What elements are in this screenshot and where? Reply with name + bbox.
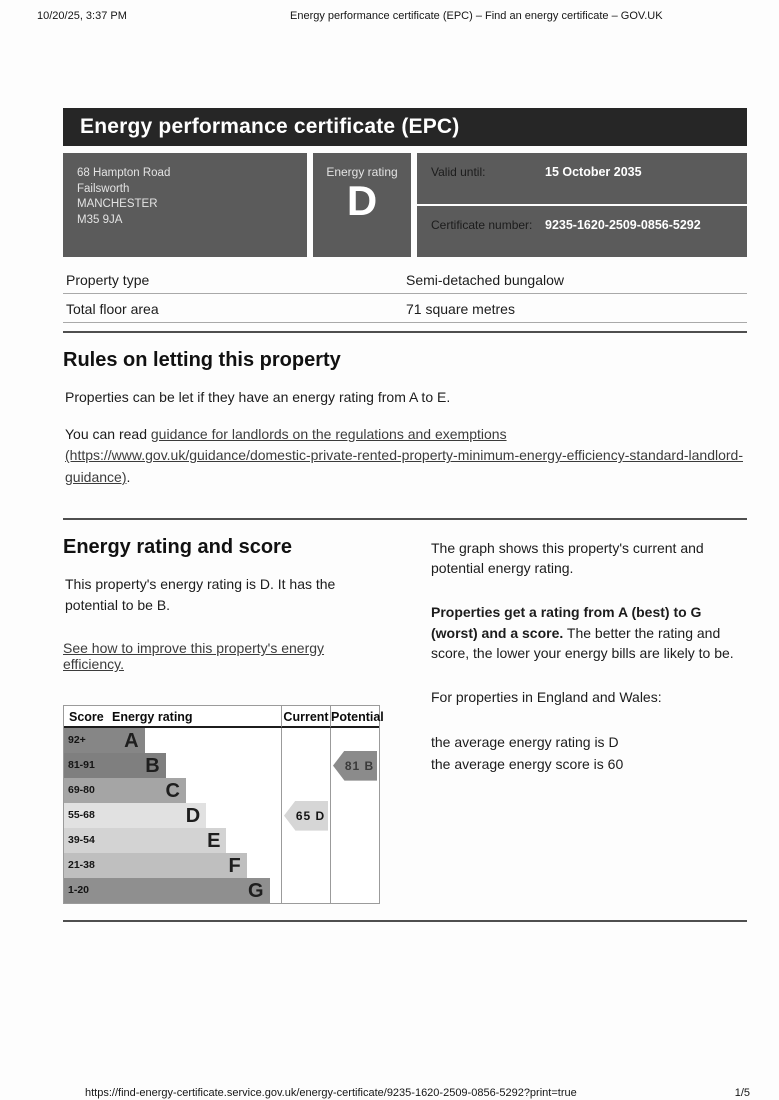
current-rating-arrow: 65 D — [284, 801, 328, 831]
band-bar-cell-g: G — [105, 878, 281, 903]
energy-rating-summary: This property's energy rating is D. It h… — [63, 574, 381, 617]
chart-col-header-rating: Energy rating — [105, 706, 281, 728]
certificate-summary-card: 68 Hampton Road Failsworth MANCHESTER M3… — [63, 153, 747, 257]
band-bar-a: A — [105, 728, 145, 753]
potential-cell-g — [330, 878, 379, 903]
potential-cell-c — [330, 778, 379, 803]
valid-until-row: Valid until: 15 October 2035 — [417, 153, 747, 204]
address-line-3: MANCHESTER — [77, 197, 293, 213]
property-address: 68 Hampton Road Failsworth MANCHESTER M3… — [63, 153, 307, 257]
chart-col-header-potential: Potential — [330, 706, 379, 728]
band-letter-g: G — [248, 881, 264, 901]
potential-rating-arrow: 81 B — [333, 751, 377, 781]
energy-rating-heading: Energy rating and score — [63, 536, 381, 559]
letting-rules-heading: Rules on letting this property — [63, 349, 747, 372]
potential-cell-f — [330, 853, 379, 878]
letting-rules-guidance-paragraph: You can read guidance for landlords on t… — [63, 424, 747, 489]
current-cell-d: 65 D — [281, 803, 330, 828]
england-wales-intro: For properties in England and Wales: — [431, 687, 747, 707]
current-cell-b — [281, 753, 330, 778]
validity-box: Valid until: 15 October 2035 Certificate… — [417, 153, 747, 257]
landlord-guidance-link[interactable]: guidance for landlords on the regulation… — [65, 426, 743, 485]
guidance-text-suffix: . — [127, 469, 131, 485]
band-score-a: 92+ — [64, 728, 105, 753]
band-bar-cell-d: D — [105, 803, 281, 828]
property-type-value: Semi-detached bungalow — [406, 272, 564, 288]
potential-cell-b: 81 B — [330, 753, 379, 778]
energy-rating-section: Energy rating and score This property's … — [63, 520, 747, 904]
band-score-c: 69-80 — [64, 778, 105, 803]
band-bar-f: F — [105, 853, 247, 878]
band-bar-cell-f: F — [105, 853, 281, 878]
band-letter-f: F — [228, 856, 240, 876]
property-type-label: Property type — [66, 272, 406, 288]
band-bar-d: D — [105, 803, 206, 828]
address-line-1: 68 Hampton Road — [77, 166, 293, 182]
energy-rating-left-column: Energy rating and score This property's … — [63, 520, 381, 904]
band-letter-d: D — [186, 806, 200, 826]
valid-until-value: 15 October 2035 — [545, 165, 642, 204]
band-bar-cell-b: B — [105, 753, 281, 778]
address-line-4: M35 9JA — [77, 213, 293, 229]
band-bar-e: E — [105, 828, 226, 853]
band-score-f: 21-38 — [64, 853, 105, 878]
current-cell-g — [281, 878, 330, 903]
property-facts-table: Property type Semi-detached bungalow Tot… — [63, 265, 747, 323]
improve-efficiency-link[interactable]: See how to improve this property's energ… — [63, 640, 381, 672]
band-bar-b: B — [105, 753, 166, 778]
epc-rating-chart: Score Energy rating Current Potential 92… — [63, 705, 380, 904]
potential-cell-e — [330, 828, 379, 853]
current-cell-f — [281, 853, 330, 878]
address-line-2: Failsworth — [77, 182, 293, 198]
band-letter-b: B — [145, 756, 159, 776]
letting-rules-paragraph: Properties can be let if they have an en… — [63, 387, 747, 409]
floor-area-label: Total floor area — [66, 301, 406, 317]
band-bar-cell-c: C — [105, 778, 281, 803]
certificate-number-value: 9235-1620-2509-0856-5292 — [545, 218, 701, 257]
band-bar-c: C — [105, 778, 186, 803]
floor-area-value: 71 square metres — [406, 301, 515, 317]
chart-col-header-current: Current — [281, 706, 330, 728]
valid-until-label: Valid until: — [431, 165, 545, 204]
guidance-text-prefix: You can read — [65, 426, 151, 442]
band-bar-cell-e: E — [105, 828, 281, 853]
current-cell-a — [281, 728, 330, 753]
energy-rating-box: Energy rating D — [313, 153, 411, 257]
rating-explanation: Properties get a rating from A (best) to… — [431, 602, 747, 663]
graph-description: The graph shows this property's current … — [431, 538, 747, 579]
band-letter-a: A — [124, 731, 138, 751]
band-letter-c: C — [166, 781, 180, 801]
epc-chart-grid: Score Energy rating Current Potential 92… — [64, 706, 379, 903]
current-cell-e — [281, 828, 330, 853]
average-rating-line: the average energy rating is D — [431, 732, 747, 752]
certificate-content: Energy performance certificate (EPC) 68 … — [63, 108, 747, 922]
epc-banner-title: Energy performance certificate (EPC) — [80, 115, 460, 139]
band-bar-cell-a: A — [105, 728, 281, 753]
print-datetime: 10/20/25, 3:37 PM — [37, 10, 127, 22]
section-divider — [63, 331, 747, 333]
printed-page: 10/20/25, 3:37 PM Energy performance cer… — [0, 0, 779, 1100]
section-divider — [63, 920, 747, 922]
table-row: Total floor area 71 square metres — [63, 294, 747, 323]
potential-cell-d — [330, 803, 379, 828]
print-url: https://find-energy-certificate.service.… — [85, 1087, 577, 1099]
print-document-title: Energy performance certificate (EPC) – F… — [290, 10, 663, 22]
band-score-b: 81-91 — [64, 753, 105, 778]
band-bar-g: G — [105, 878, 270, 903]
current-cell-c — [281, 778, 330, 803]
band-letter-e: E — [207, 831, 220, 851]
band-score-e: 39-54 — [64, 828, 105, 853]
print-page-indicator: 1/5 — [735, 1087, 750, 1099]
epc-banner: Energy performance certificate (EPC) — [63, 108, 747, 146]
certificate-number-label: Certificate number: — [431, 218, 545, 257]
band-score-g: 1-20 — [64, 878, 105, 903]
potential-cell-a — [330, 728, 379, 753]
certificate-number-row: Certificate number: 9235-1620-2509-0856-… — [417, 206, 747, 257]
band-score-d: 55-68 — [64, 803, 105, 828]
chart-col-header-score: Score — [64, 706, 105, 728]
table-row: Property type Semi-detached bungalow — [63, 265, 747, 294]
energy-rating-right-column: The graph shows this property's current … — [431, 520, 747, 904]
energy-rating-value: D — [347, 179, 377, 223]
average-score-line: the average energy score is 60 — [431, 754, 747, 774]
